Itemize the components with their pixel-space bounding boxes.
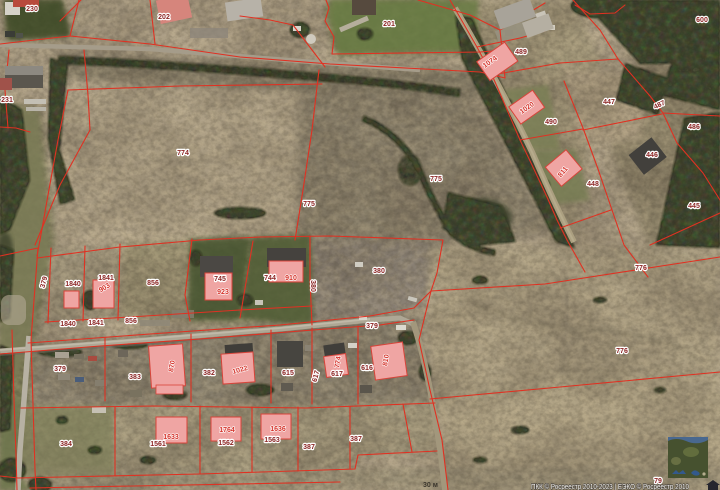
svg-text:387: 387 [350, 436, 362, 443]
svg-text:1633: 1633 [163, 434, 179, 441]
svg-text:1841: 1841 [98, 275, 114, 282]
svg-text:387: 387 [303, 444, 315, 451]
svg-text:379: 379 [54, 366, 66, 373]
svg-text:616: 616 [361, 365, 373, 372]
svg-text:380: 380 [373, 268, 385, 275]
svg-text:923: 923 [217, 289, 229, 296]
svg-text:856: 856 [125, 318, 137, 325]
svg-text:600: 600 [696, 17, 708, 24]
svg-text:30 м: 30 м [423, 482, 438, 489]
svg-text:1840: 1840 [60, 321, 76, 328]
svg-text:1841: 1841 [88, 320, 104, 327]
svg-text:202: 202 [158, 14, 170, 21]
svg-text:446: 446 [646, 152, 658, 159]
svg-text:856: 856 [147, 280, 159, 287]
svg-text:384: 384 [60, 441, 72, 448]
svg-text:775: 775 [303, 201, 315, 208]
svg-text:776: 776 [616, 348, 628, 355]
svg-text:1563: 1563 [264, 437, 280, 444]
svg-text:1562: 1562 [218, 440, 234, 447]
svg-text:745: 745 [214, 276, 226, 283]
svg-text:380: 380 [309, 280, 316, 292]
svg-text:617: 617 [331, 371, 343, 378]
svg-text:ПКК © Росреестр 2010-2023 | ЕЭ: ПКК © Росреестр 2010-2023 | ЕЭКО © Росре… [531, 483, 689, 490]
svg-text:1840: 1840 [65, 281, 81, 288]
svg-text:615: 615 [282, 370, 294, 377]
svg-text:1764: 1764 [219, 427, 235, 434]
svg-text:448: 448 [587, 181, 599, 188]
svg-text:744: 744 [264, 275, 276, 282]
svg-text:1561: 1561 [150, 441, 166, 448]
svg-text:201: 201 [383, 21, 395, 28]
svg-text:379: 379 [366, 323, 378, 330]
svg-text:775: 775 [430, 176, 442, 183]
svg-text:486: 486 [688, 124, 700, 131]
svg-text:490: 490 [545, 119, 557, 126]
svg-text:776: 776 [635, 265, 647, 272]
svg-text:447: 447 [603, 99, 615, 106]
svg-text:1636: 1636 [270, 426, 286, 433]
svg-text:383: 383 [129, 374, 141, 381]
svg-text:230: 230 [26, 6, 38, 13]
svg-text:382: 382 [203, 370, 215, 377]
svg-text:445: 445 [688, 203, 700, 210]
svg-text:774: 774 [177, 150, 189, 157]
svg-text:231: 231 [1, 97, 13, 104]
svg-text:910: 910 [285, 275, 297, 282]
svg-text:489: 489 [515, 49, 527, 56]
